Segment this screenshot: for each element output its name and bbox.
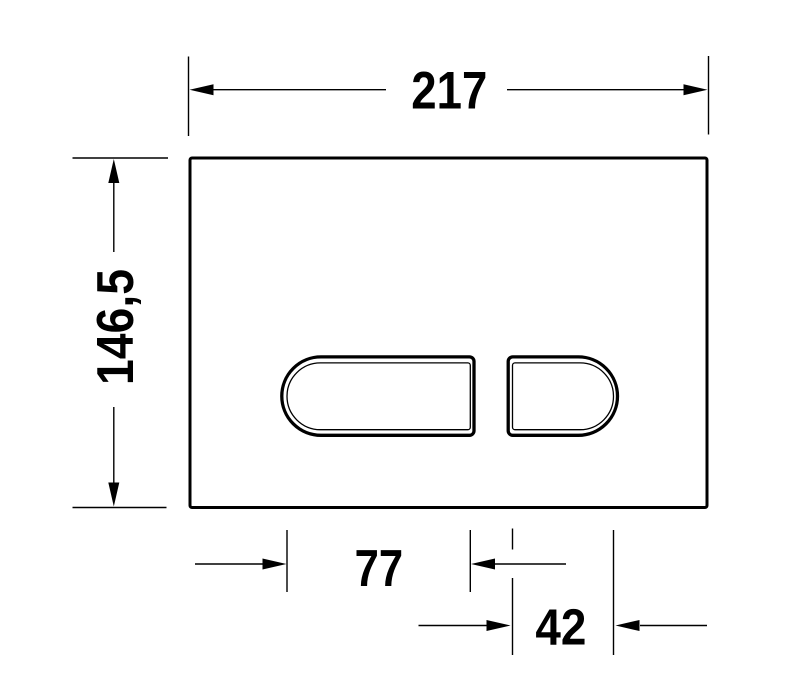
svg-text:42: 42 [535, 599, 586, 656]
svg-text:146,5: 146,5 [87, 269, 145, 385]
svg-text:77: 77 [355, 539, 404, 597]
svg-text:217: 217 [411, 63, 487, 121]
